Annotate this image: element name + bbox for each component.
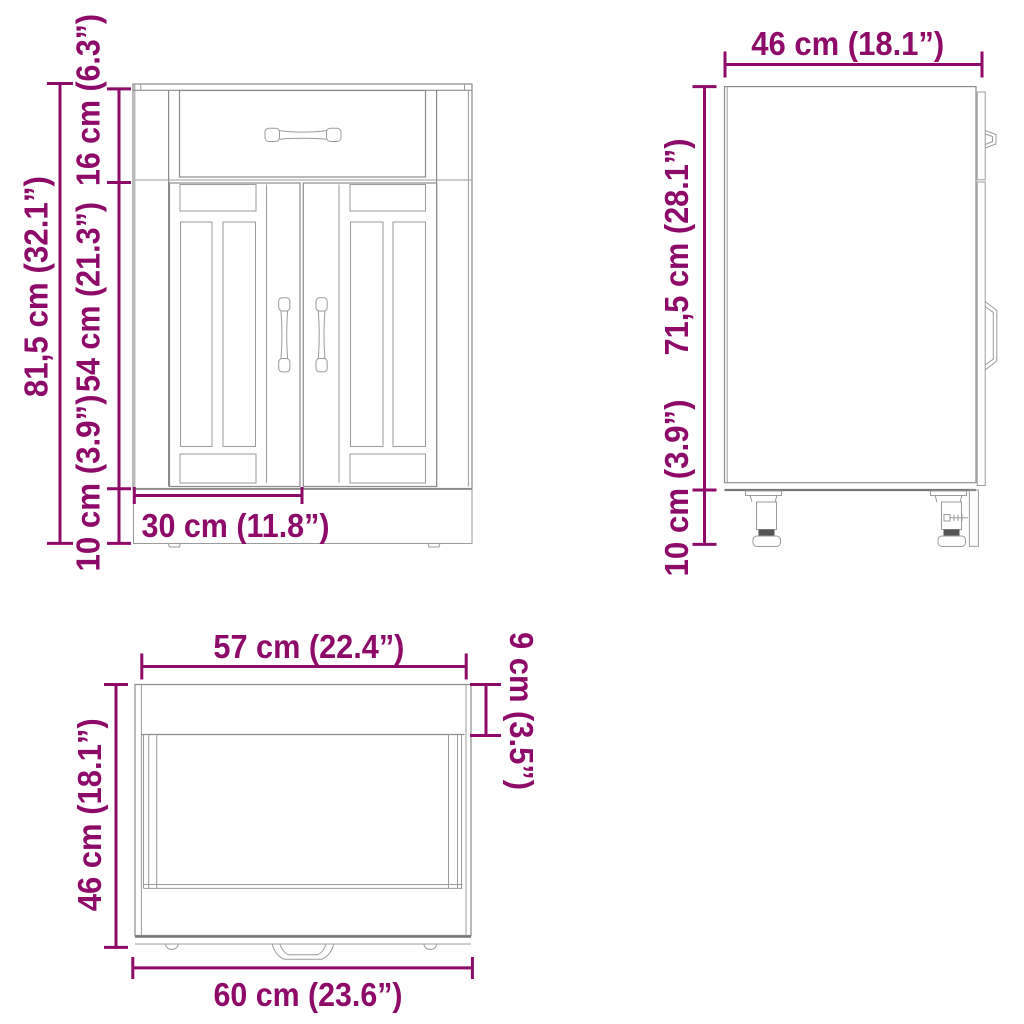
svg-text:81,5 cm (32.1”): 81,5 cm (32.1”) bbox=[18, 176, 55, 397]
svg-text:54 cm (21.3”): 54 cm (21.3”) bbox=[70, 202, 107, 392]
svg-text:60 cm (23.6”): 60 cm (23.6”) bbox=[214, 976, 403, 1013]
svg-text:46 cm (18.1”): 46 cm (18.1”) bbox=[71, 718, 108, 911]
svg-text:30 cm (11.8”): 30 cm (11.8”) bbox=[142, 507, 330, 544]
svg-text:10 cm (3.9”): 10 cm (3.9”) bbox=[70, 395, 107, 572]
svg-text:71,5 cm (28.1”): 71,5 cm (28.1”) bbox=[658, 139, 695, 356]
svg-text:16 cm (6.3”): 16 cm (6.3”) bbox=[70, 14, 107, 186]
svg-text:46 cm (18.1”): 46 cm (18.1”) bbox=[751, 25, 944, 62]
svg-text:9 cm (3.5”): 9 cm (3.5”) bbox=[503, 632, 540, 790]
svg-text:57 cm (22.4”): 57 cm (22.4”) bbox=[213, 628, 404, 665]
svg-text:10 cm (3.9”): 10 cm (3.9”) bbox=[658, 400, 695, 577]
